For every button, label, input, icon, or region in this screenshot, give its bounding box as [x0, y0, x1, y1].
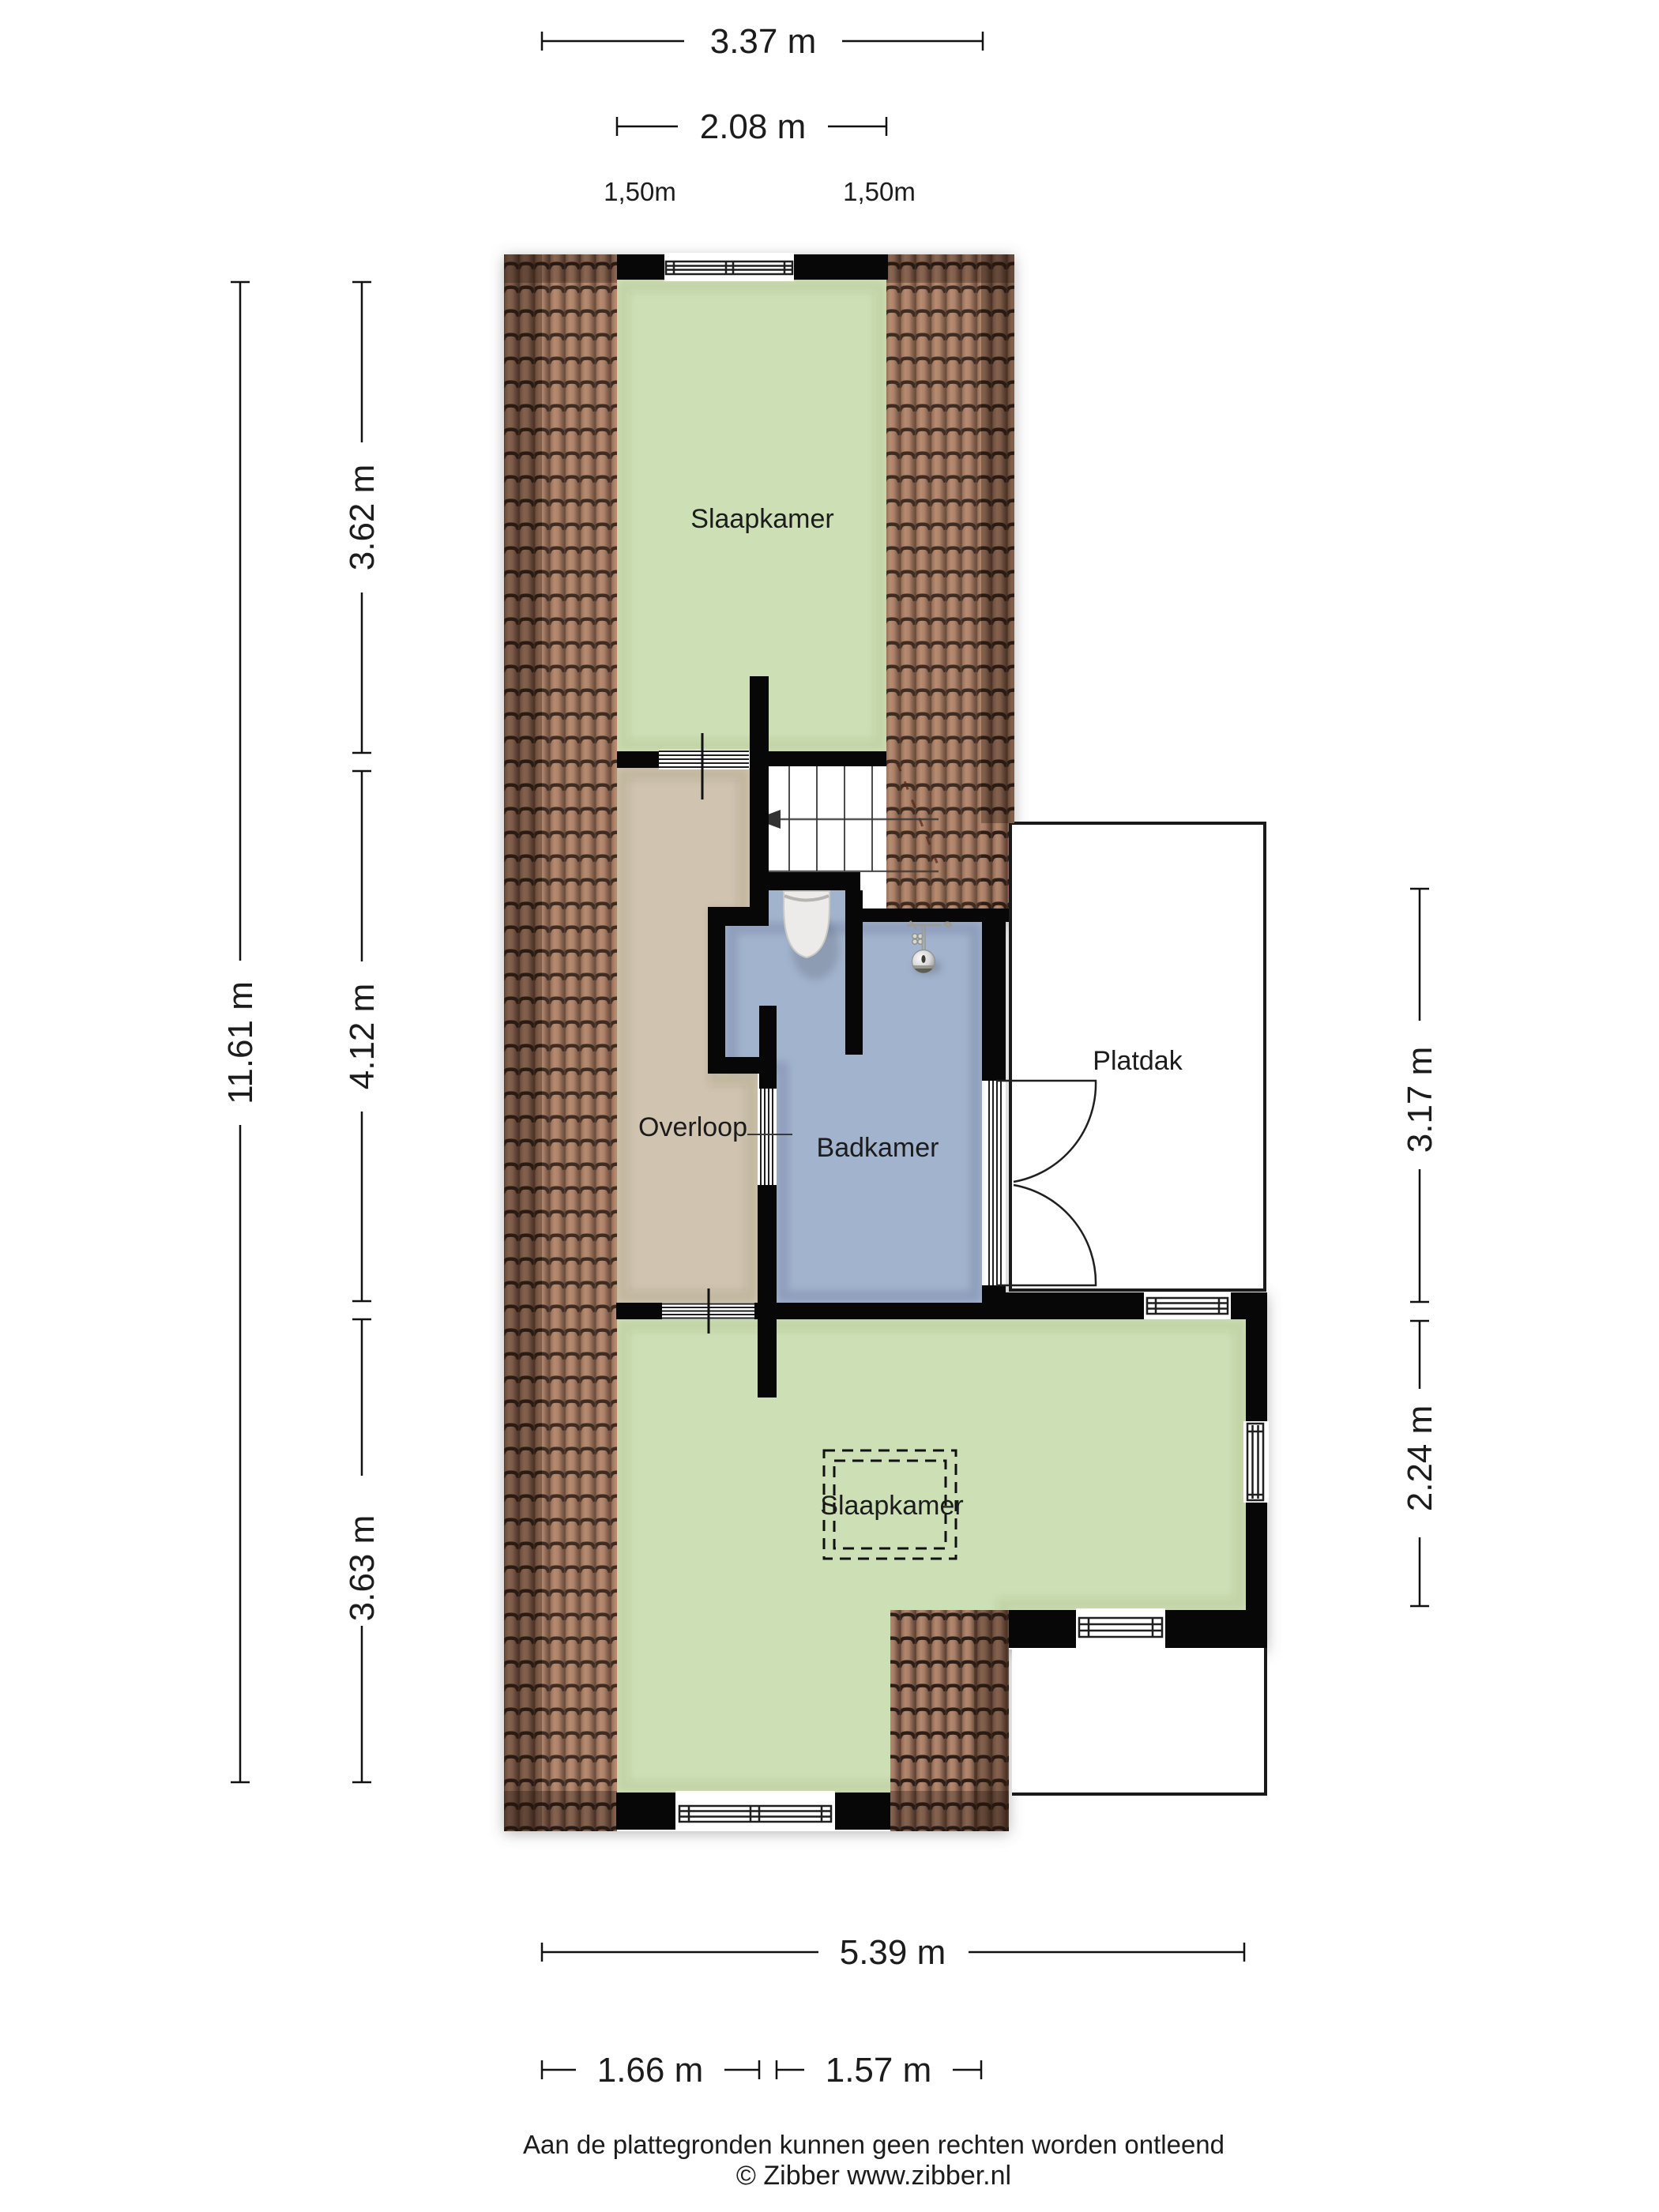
- svg-text:1.66 m: 1.66 m: [597, 2051, 704, 2090]
- svg-text:11.61 m: 11.61 m: [221, 981, 260, 1104]
- svg-text:3.17 m: 3.17 m: [1401, 1047, 1439, 1153]
- svg-text:2.24 m: 2.24 m: [1401, 1405, 1439, 1512]
- svg-text:2.08 m: 2.08 m: [700, 107, 807, 146]
- svg-text:3.37 m: 3.37 m: [710, 22, 817, 61]
- svg-text:Overloop: Overloop: [638, 1112, 747, 1142]
- svg-text:Slaapkamer: Slaapkamer: [820, 1491, 963, 1521]
- svg-text:Slaapkamer: Slaapkamer: [690, 504, 833, 534]
- svg-text:5.39 m: 5.39 m: [840, 1933, 946, 1972]
- svg-text:4.12 m: 4.12 m: [343, 984, 382, 1090]
- svg-text:1.57 m: 1.57 m: [826, 2051, 932, 2090]
- svg-text:1,50m: 1,50m: [604, 177, 676, 206]
- svg-text:3.62 m: 3.62 m: [343, 465, 382, 571]
- svg-text:© Zibber www.zibber.nl: © Zibber www.zibber.nl: [736, 2161, 1011, 2191]
- svg-text:3.63 m: 3.63 m: [343, 1515, 382, 1622]
- svg-text:Badkamer: Badkamer: [817, 1133, 939, 1163]
- svg-text:Platdak: Platdak: [1093, 1046, 1183, 1076]
- svg-text:Aan de plattegronden kunnen ge: Aan de plattegronden kunnen geen rechten…: [523, 2130, 1224, 2159]
- svg-text:1,50m: 1,50m: [843, 177, 916, 206]
